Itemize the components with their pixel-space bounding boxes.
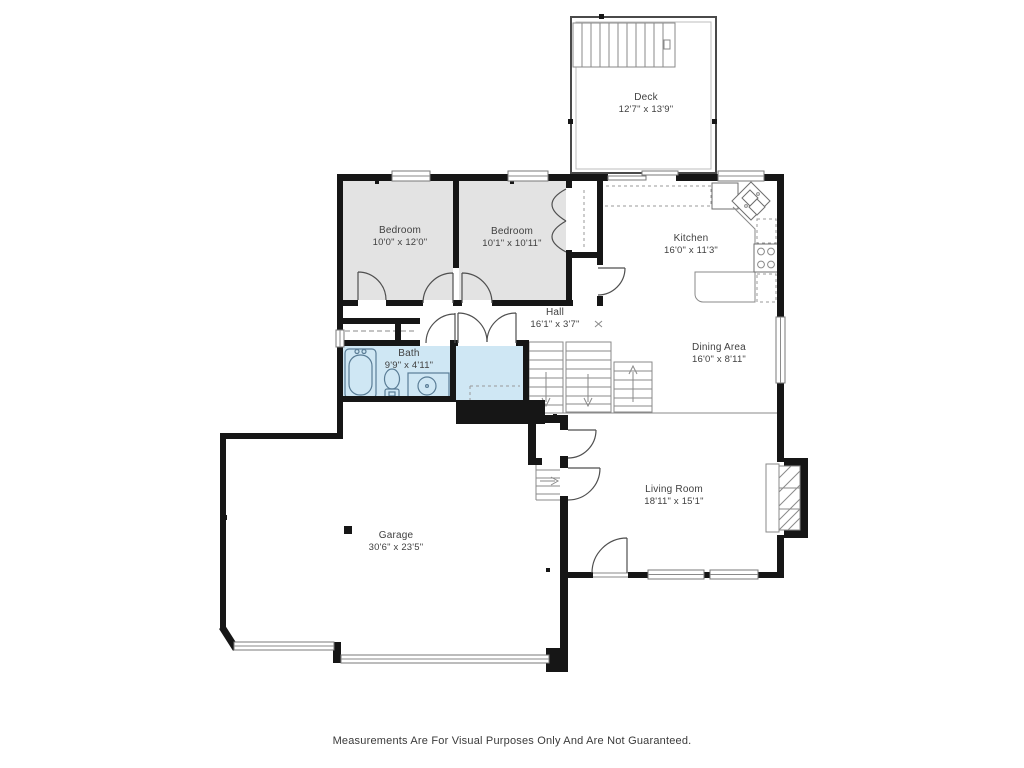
garage-post [344,526,352,534]
deck-stairs-icon [573,23,675,67]
disclaimer-text: Measurements Are For Visual Purposes Onl… [0,735,1024,747]
bedroom1-window-icon [392,171,430,181]
hall-x-marker [595,321,602,327]
garage-door-left-icon [234,642,334,650]
hall-label: Hall 16'1" x 3'7" [530,306,579,331]
bedroom2-window-icon [508,171,548,181]
kitchen-window-icon [718,171,764,181]
deck-label: Deck 12'7" x 13'9" [619,91,674,116]
bath-window-icon [336,330,344,347]
bath-label: Bath 9'9" x 4'11" [385,347,434,372]
front-door-threshold [593,573,628,577]
bedroom2-entry-door-icon [426,313,455,343]
living-window-left-icon [648,570,704,579]
fridge-icon [712,183,738,209]
bedroom2-label: Bedroom 10'1" x 10'11" [482,225,541,250]
front-door-icon [592,538,627,573]
dining-window-icon [776,317,785,383]
bedroom1-label: Bedroom 10'0" x 12'0" [373,224,428,249]
floorplan-drawing [0,0,1024,768]
fireplace-icon [766,458,808,538]
stove-icon [754,244,778,272]
living-label: Living Room 18'11" x 15'1" [644,483,703,508]
floorplan-page: Deck 12'7" x 13'9" Bedroom 10'0" x 12'0"… [0,0,1024,768]
living-window-right-icon [710,570,758,579]
garage-label: Garage 30'6" x 23'5" [369,529,424,554]
living-door-upper-icon [568,430,596,458]
dining-label: Dining Area 16'0" x 8'11" [692,341,746,366]
garage-door-right-icon [341,655,549,663]
shower-double-doors-icon [458,313,516,343]
living-door-lower-icon [568,468,600,500]
kitchen-door-icon [598,268,625,295]
shower-room-floor [456,346,523,402]
kitchen-label: Kitchen 16'0" x 11'3" [664,232,718,257]
